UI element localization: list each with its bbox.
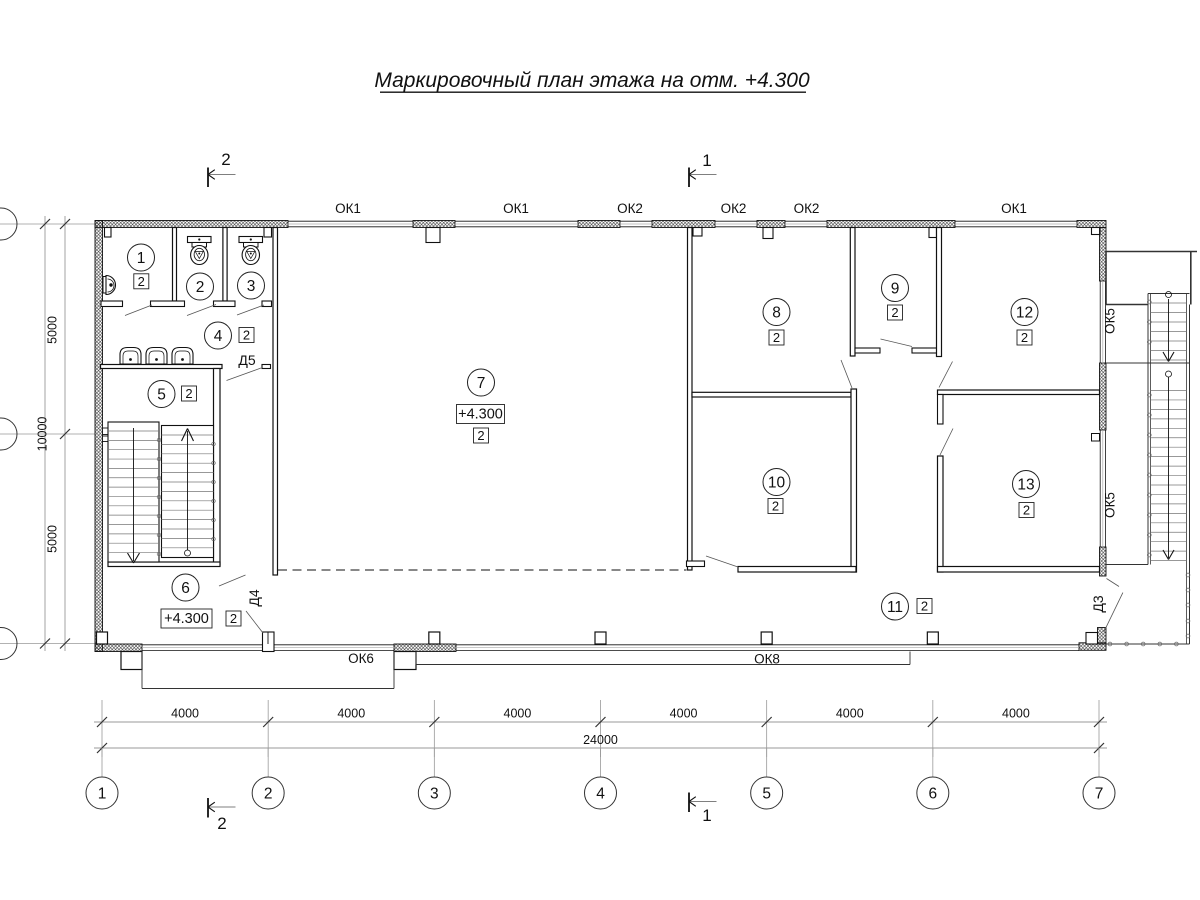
svg-text:2: 2	[477, 428, 484, 443]
svg-text:4000: 4000	[670, 707, 698, 721]
svg-text:+4.300: +4.300	[458, 407, 503, 423]
svg-text:2: 2	[138, 274, 145, 289]
svg-text:1: 1	[137, 250, 146, 267]
svg-text:2: 2	[773, 330, 780, 345]
svg-text:11: 11	[887, 599, 903, 616]
svg-text:6: 6	[929, 786, 938, 803]
svg-text:ОК1: ОК1	[335, 201, 361, 216]
svg-text:5000: 5000	[46, 525, 60, 553]
svg-text:2: 2	[1021, 330, 1028, 345]
svg-text:+4.300: +4.300	[164, 611, 209, 627]
svg-text:Д3: Д3	[1090, 595, 1106, 612]
svg-text:5: 5	[157, 387, 166, 404]
svg-text:13: 13	[1017, 477, 1034, 494]
svg-text:4000: 4000	[836, 707, 864, 721]
svg-text:9: 9	[891, 281, 900, 298]
svg-text:2: 2	[221, 150, 230, 169]
svg-text:5: 5	[762, 786, 771, 803]
svg-text:Д5: Д5	[238, 352, 255, 368]
svg-text:2: 2	[217, 814, 226, 833]
svg-text:Д4: Д4	[246, 589, 262, 606]
svg-text:2: 2	[196, 279, 205, 296]
svg-text:ОК5: ОК5	[1103, 308, 1118, 334]
svg-text:2: 2	[230, 611, 237, 626]
svg-text:2: 2	[921, 599, 928, 614]
svg-text:2: 2	[891, 305, 898, 320]
svg-text:4: 4	[596, 786, 605, 803]
svg-text:ОК6: ОК6	[348, 651, 374, 666]
svg-text:1: 1	[702, 806, 711, 825]
svg-text:ОК5: ОК5	[1103, 492, 1118, 518]
svg-text:ОК8: ОК8	[754, 652, 780, 667]
svg-text:2: 2	[772, 499, 779, 514]
svg-text:4000: 4000	[504, 707, 532, 721]
svg-text:1: 1	[702, 151, 711, 170]
svg-text:ОК1: ОК1	[503, 201, 529, 216]
svg-text:2: 2	[243, 328, 250, 343]
svg-text:3: 3	[247, 278, 256, 295]
svg-text:7: 7	[477, 375, 486, 392]
svg-text:2: 2	[264, 786, 273, 803]
svg-text:ОК2: ОК2	[794, 201, 820, 216]
svg-text:ОК1: ОК1	[1001, 201, 1027, 216]
svg-text:12: 12	[1016, 305, 1033, 322]
svg-text:24000: 24000	[583, 733, 618, 747]
svg-text:4000: 4000	[337, 707, 365, 721]
svg-text:5000: 5000	[46, 316, 60, 344]
svg-text:7: 7	[1095, 786, 1104, 803]
svg-text:3: 3	[430, 786, 439, 803]
svg-text:4000: 4000	[1002, 707, 1030, 721]
svg-text:10: 10	[768, 475, 786, 492]
svg-text:8: 8	[772, 305, 781, 322]
svg-text:ОК2: ОК2	[617, 201, 643, 216]
svg-text:ОК2: ОК2	[721, 201, 747, 216]
svg-text:4: 4	[214, 328, 223, 345]
svg-text:10000: 10000	[36, 417, 50, 452]
svg-text:2: 2	[185, 386, 192, 401]
svg-text:2: 2	[1023, 503, 1030, 518]
svg-text:Маркировочный план этажа на от: Маркировочный план этажа на отм. +4.300	[374, 69, 810, 92]
svg-text:4000: 4000	[171, 707, 199, 721]
svg-text:6: 6	[181, 580, 190, 597]
svg-text:1: 1	[98, 786, 107, 803]
